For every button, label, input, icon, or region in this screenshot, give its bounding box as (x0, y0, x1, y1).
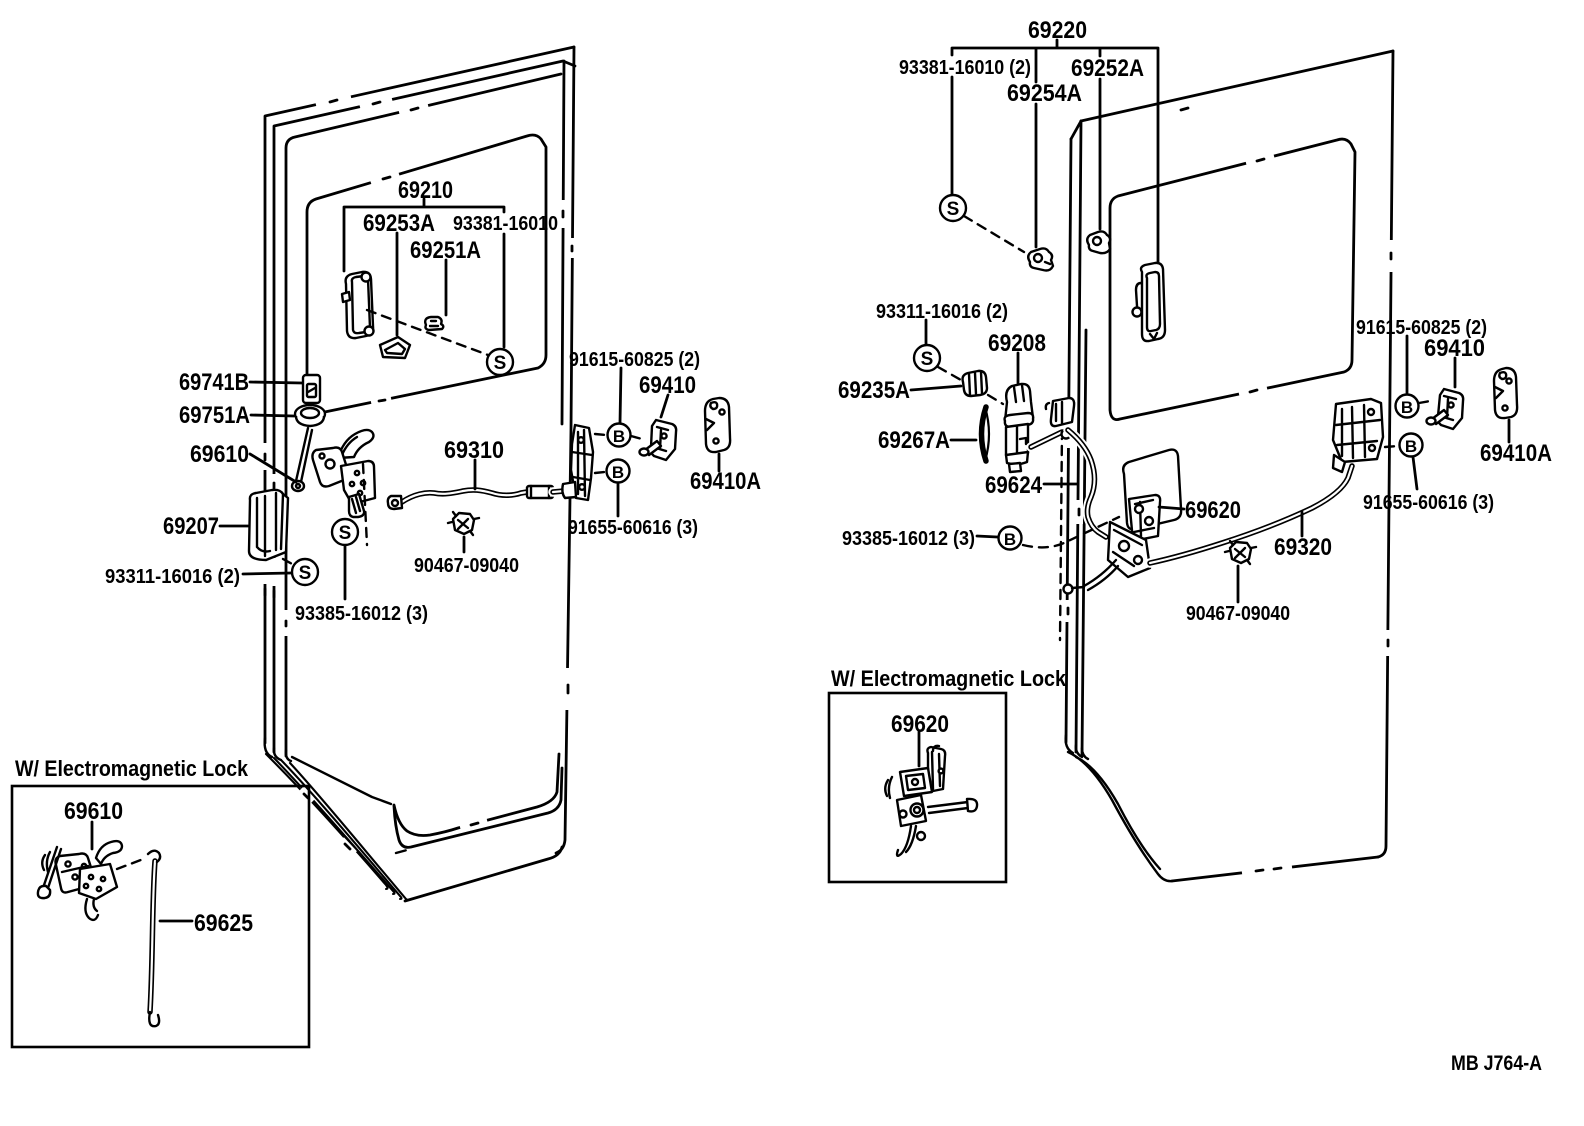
svg-text:S: S (339, 523, 352, 544)
svg-text:W/ Electromagnetic Lock: W/ Electromagnetic Lock (831, 666, 1067, 691)
svg-text:93385-16012 (3): 93385-16012 (3) (295, 603, 428, 625)
svg-text:69254A: 69254A (1007, 80, 1082, 107)
svg-text:69410: 69410 (639, 372, 696, 399)
svg-text:69235A: 69235A (838, 377, 910, 404)
svg-text:B: B (613, 427, 625, 446)
svg-text:69620: 69620 (1185, 497, 1241, 524)
svg-text:69410: 69410 (1424, 335, 1485, 362)
svg-text:93381-16010: 93381-16010 (453, 213, 558, 235)
svg-text:93311-16016 (2): 93311-16016 (2) (105, 566, 240, 588)
svg-text:S: S (299, 563, 312, 584)
svg-text:69207: 69207 (163, 513, 219, 540)
svg-text:69251A: 69251A (410, 237, 481, 264)
svg-text:91655-60616 (3): 91655-60616 (3) (1363, 492, 1494, 514)
svg-text:69610: 69610 (190, 441, 249, 468)
svg-text:S: S (494, 353, 507, 374)
svg-text:69625: 69625 (194, 910, 253, 937)
svg-text:69610: 69610 (64, 798, 123, 825)
svg-text:93385-16012 (3): 93385-16012 (3) (842, 528, 975, 550)
svg-text:90467-09040: 90467-09040 (414, 555, 519, 577)
svg-text:91655-60616 (3): 91655-60616 (3) (568, 517, 698, 539)
svg-text:69741B: 69741B (179, 369, 249, 396)
svg-text:69620: 69620 (891, 711, 949, 738)
svg-text:69253A: 69253A (363, 210, 435, 237)
svg-text:B: B (1405, 437, 1417, 456)
svg-text:B: B (1401, 398, 1413, 417)
svg-text:69320: 69320 (1274, 534, 1332, 561)
svg-text:69252A: 69252A (1071, 55, 1144, 82)
svg-text:69210: 69210 (398, 177, 453, 204)
svg-text:69220: 69220 (1028, 17, 1087, 44)
svg-text:93381-16010 (2): 93381-16010 (2) (899, 57, 1031, 79)
svg-text:69310: 69310 (444, 437, 504, 464)
svg-text:93311-16016 (2): 93311-16016 (2) (876, 301, 1008, 323)
svg-text:S: S (947, 199, 960, 220)
svg-text:91615-60825 (2): 91615-60825 (2) (569, 349, 700, 371)
svg-text:MB J764-A: MB J764-A (1451, 1052, 1542, 1075)
svg-text:69208: 69208 (988, 330, 1046, 357)
svg-text:W/ Electromagnetic Lock: W/ Electromagnetic Lock (15, 756, 249, 781)
svg-text:69624: 69624 (985, 472, 1043, 499)
svg-text:69267A: 69267A (878, 427, 950, 454)
svg-text:90467-09040: 90467-09040 (1186, 603, 1290, 625)
svg-text:69751A: 69751A (179, 402, 250, 429)
svg-text:B: B (612, 463, 624, 482)
svg-text:69410A: 69410A (1480, 440, 1552, 467)
svg-text:B: B (1004, 530, 1016, 549)
svg-text:69410A: 69410A (690, 468, 761, 495)
svg-text:S: S (921, 349, 934, 370)
